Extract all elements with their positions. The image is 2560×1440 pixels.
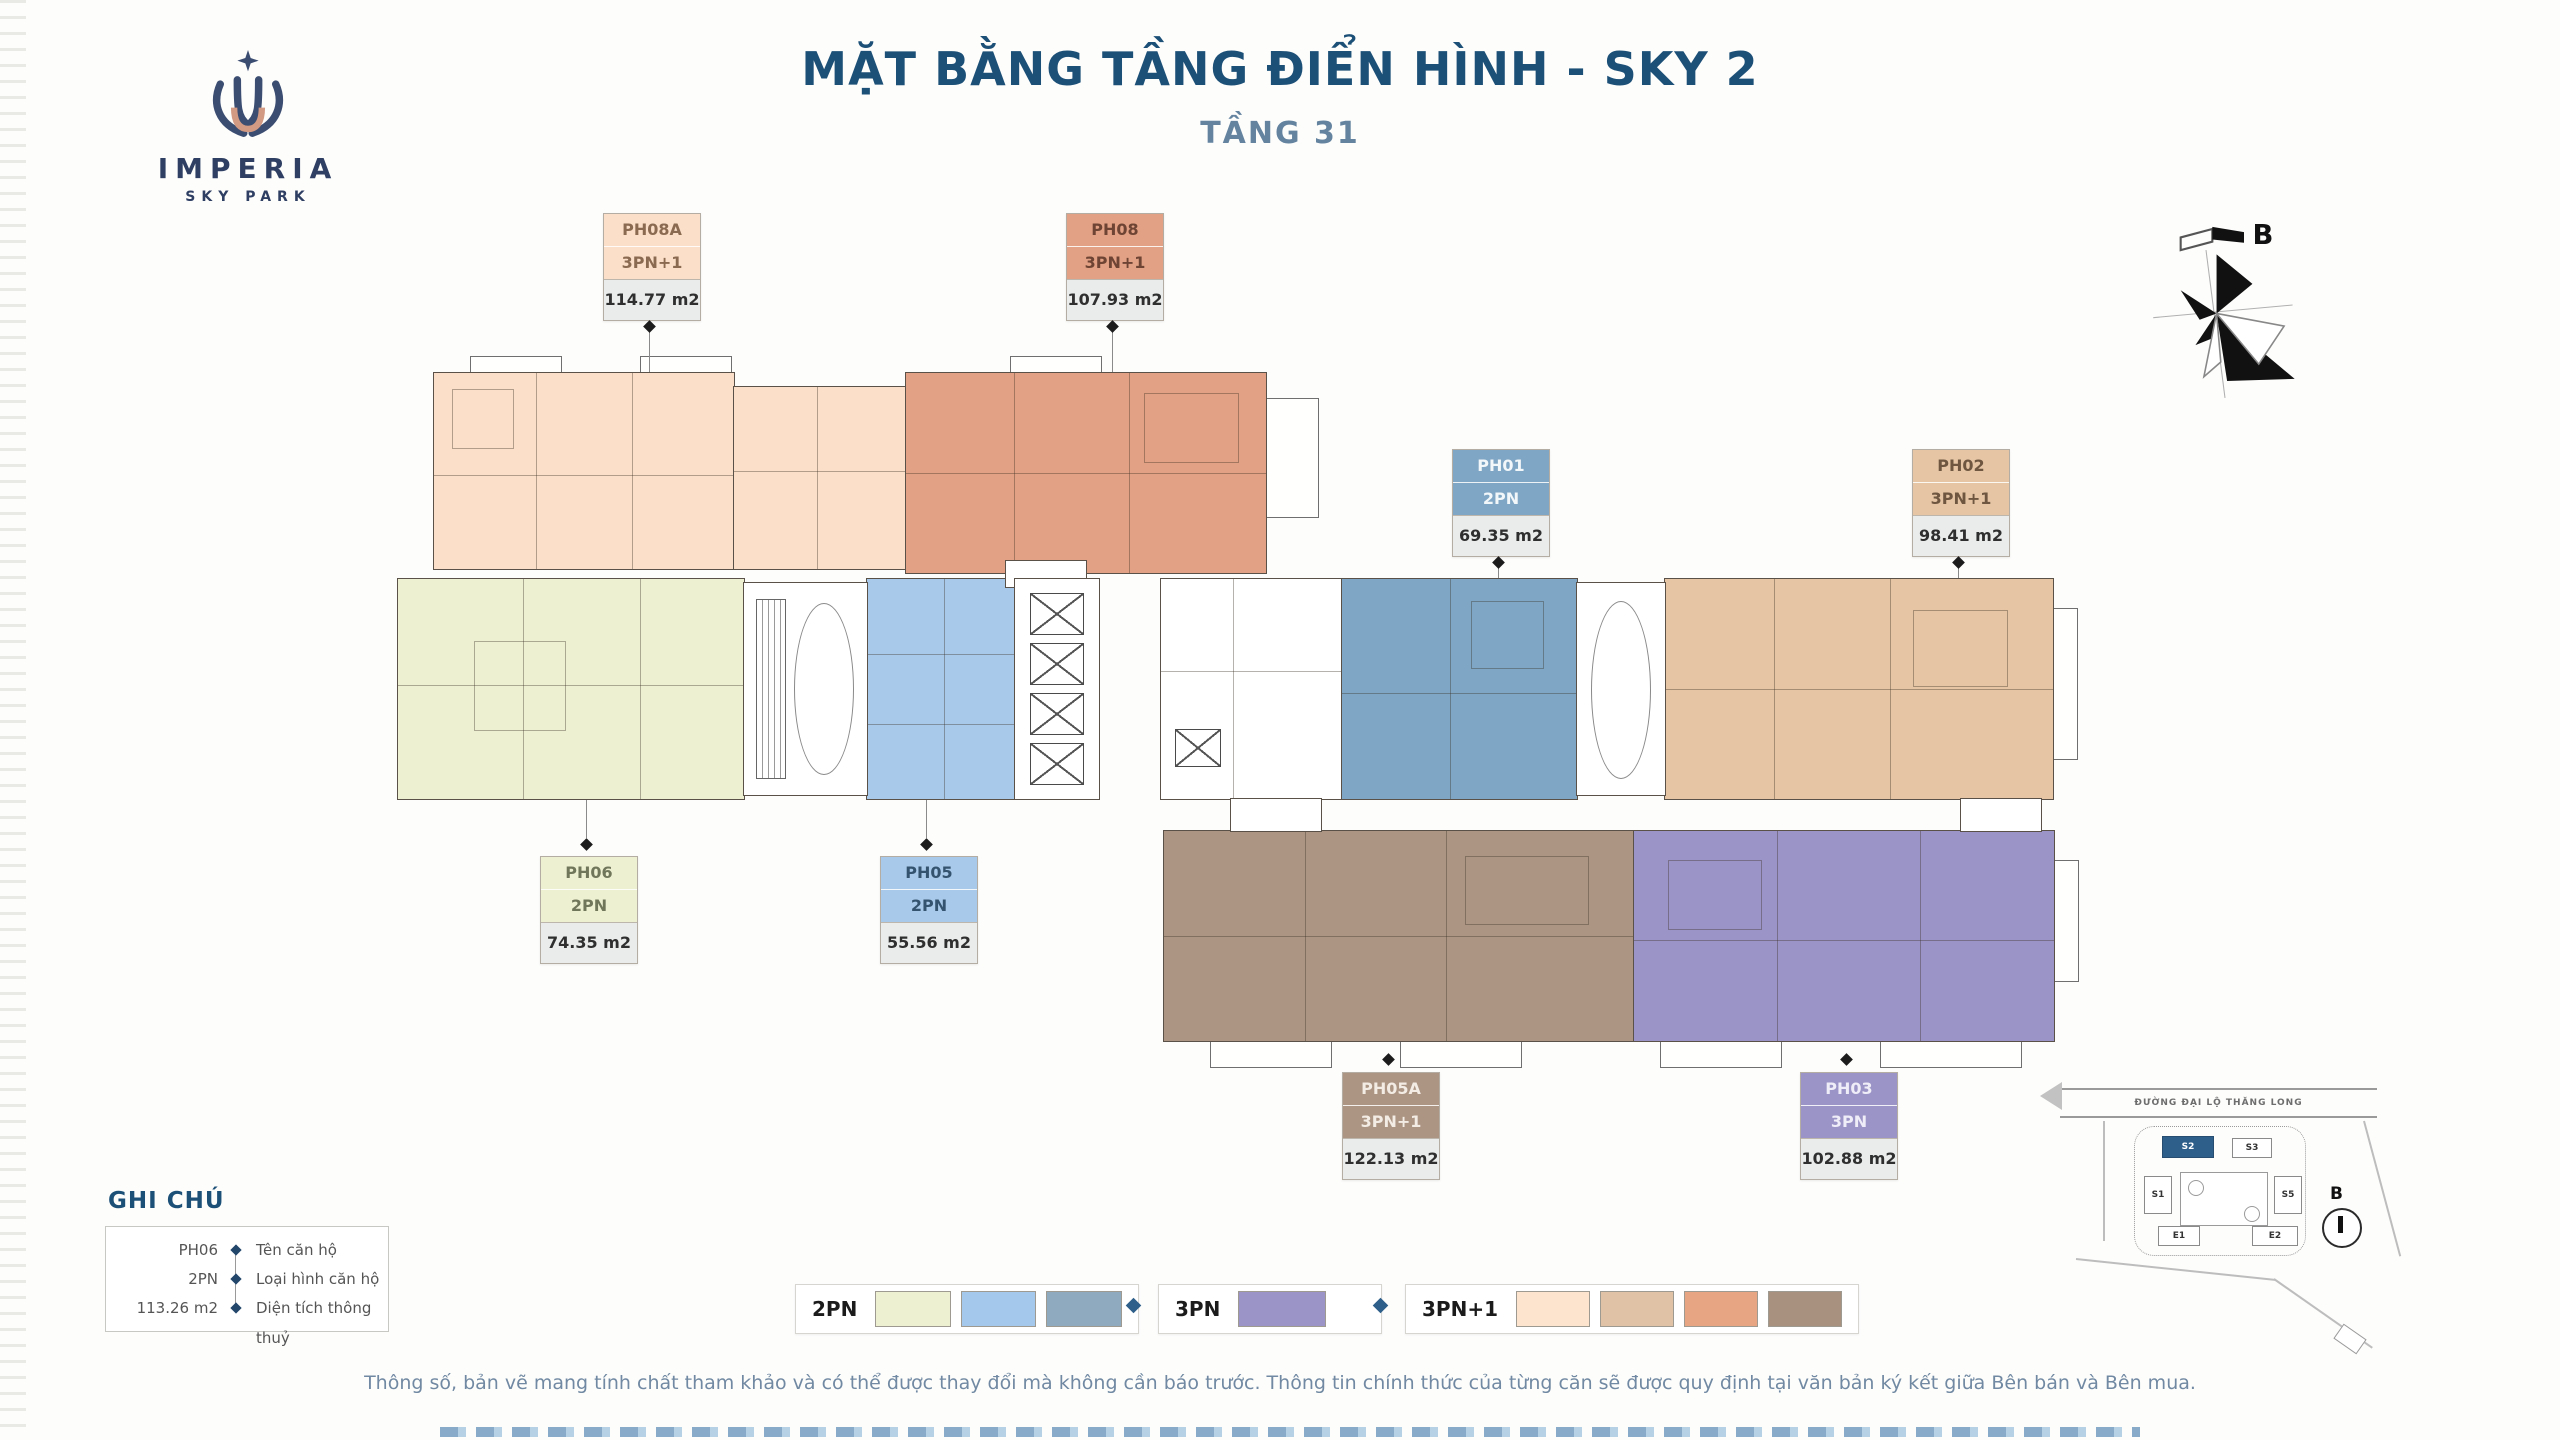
road-line [2076,1258,2275,1281]
color-swatch [1046,1291,1122,1327]
podium-circle [2188,1180,2204,1196]
elevator-shaft [1030,643,1084,685]
notes-legend-title: GHI CHÚ [108,1188,225,1214]
notes-legend-box: PH06 Tên căn hộ 2PN Loại hình căn hộ 113… [105,1226,389,1332]
unit-name: PH01 [1453,450,1549,483]
pointer-diamond [1492,556,1505,569]
sitemap-building-s3: S3 [2232,1138,2272,1158]
pointer-diamond [643,320,656,333]
page-subtitle: TẦNG 31 [1200,116,1360,151]
sitemap-building-s2: S2 [2162,1136,2214,1158]
type-legend-label: 3PN [1175,1297,1220,1321]
notes-row: 2PN Loại hình căn hộ [106,1264,388,1294]
balcony [1400,1040,1522,1068]
elevator-shaft [1030,743,1084,785]
balcony [1880,1040,2022,1068]
unit-type: 3PN+1 [604,247,700,280]
plan-core-stairs-east [1576,582,1666,796]
unit-label-ph05: PH05 2PN 55.56 m2 [880,856,978,964]
floorplan-page: IMPERIA SKY PARK MẶT BẰNG TẦNG ĐIỂN HÌNH… [0,0,2560,1440]
notes-value: 2PN [106,1264,218,1294]
type-legend-label: 3PN+1 [1422,1297,1498,1321]
sitemap-building-s1: S1 [2144,1176,2172,1214]
diamond-icon [230,1273,241,1284]
unit-area: 69.35 m2 [1453,516,1549,556]
page-title: MẶT BẰNG TẦNG ĐIỂN HÌNH - SKY 2 [801,42,1758,96]
plan-unit-ph05a [1163,830,1635,1042]
unit-area: 98.41 m2 [1913,516,2009,556]
balcony [1210,1040,1332,1068]
left-edge-pattern [0,0,26,1440]
unit-label-ph06: PH06 2PN 74.35 m2 [540,856,638,964]
unit-name: PH06 [541,857,637,890]
unit-label-ph08: PH08 3PN+1 107.93 m2 [1066,213,1164,321]
unit-name: PH03 [1801,1073,1897,1106]
notes-row: PH06 Tên căn hộ [106,1235,388,1265]
unit-area: 74.35 m2 [541,923,637,963]
unit-area: 55.56 m2 [881,923,977,963]
elevator-shaft [1030,693,1084,735]
color-swatch [1684,1291,1758,1327]
unit-type: 2PN [541,890,637,923]
stair-oval [794,603,854,775]
site-map: ĐƯỜNG ĐẠI LỘ THĂNG LONG S2 S3 S1 S5 E1 E… [2046,1080,2391,1385]
plan-connector [1230,798,1322,832]
pointer-diamond [1840,1053,1853,1066]
plan-unit-ph01 [1340,578,1578,800]
road-stub [2333,1324,2366,1355]
unit-name: PH05 [881,857,977,890]
unit-name: PH08 [1067,214,1163,247]
unit-label-ph02: PH02 3PN+1 98.41 m2 [1912,449,2010,557]
pointer-diamond [920,838,933,851]
plan-unit-ph08a-east [733,386,907,570]
unit-label-ph08a: PH08A 3PN+1 114.77 m2 [603,213,701,321]
stairs [756,599,786,779]
unit-type: 3PN+1 [1067,247,1163,280]
sitemap-road: ĐƯỜNG ĐẠI LỘ THĂNG LONG [2060,1088,2377,1118]
plan-core-stairs-west [743,582,868,796]
unit-area: 114.77 m2 [604,280,700,320]
plan-unit-ph02 [1664,578,2054,800]
balcony [1660,1040,1782,1068]
pointer-line [926,800,927,838]
balcony [2053,860,2079,982]
road-arrow-icon [2040,1082,2062,1110]
unit-name: PH08A [604,214,700,247]
plan-unit-ph08 [905,372,1267,574]
unit-type: 3PN+1 [1913,483,2009,516]
diamond-icon [230,1244,241,1255]
color-swatch [1516,1291,1590,1327]
disclaimer-text: Thông số, bản vẽ mang tính chất tham khả… [364,1372,2196,1394]
podium-circle [2244,1206,2260,1222]
sitemap-north-label: B [2330,1184,2343,1204]
plan-connector [1960,798,2042,832]
pointer-line [649,332,650,372]
unit-name: PH02 [1913,450,2009,483]
compass-rose-icon: B [2150,210,2300,400]
plan-unit-ph06 [397,578,745,800]
road-line [2103,1121,2105,1241]
plan-core-east [1160,578,1342,800]
type-legend-label: 2PN [812,1297,857,1321]
plan-unit-ph03 [1633,830,2055,1042]
type-legend-3pn1: 3PN+1 [1405,1284,1859,1334]
road-line [2363,1121,2401,1257]
unit-type: 3PN [1801,1106,1897,1139]
unit-area: 102.88 m2 [1801,1139,1897,1179]
brand-subname: SKY PARK [148,189,348,205]
color-swatch [961,1291,1037,1327]
unit-type: 2PN [881,890,977,923]
pointer-diamond [1952,556,1965,569]
brand-logo: IMPERIA SKY PARK [148,50,348,205]
balcony [1265,398,1319,518]
pointer-diamond [1382,1053,1395,1066]
unit-name: PH05A [1343,1073,1439,1106]
stair-oval [1591,601,1651,779]
pointer-line [1112,332,1113,372]
type-legend-3pn: 3PN [1158,1284,1382,1334]
pointer-line [586,800,587,838]
type-legend-2pn: 2PN [795,1284,1139,1334]
sitemap-north-needle [2338,1216,2343,1233]
notes-value: PH06 [106,1235,218,1265]
unit-label-ph03: PH03 3PN 102.88 m2 [1800,1072,1898,1180]
sitemap-building-e1: E1 [2158,1226,2200,1246]
notes-label: Loại hình căn hộ [256,1264,379,1294]
plan-unit-ph05 [866,578,1016,800]
tulip-logo-icon [183,50,313,146]
color-swatch [1238,1291,1326,1327]
unit-type: 3PN+1 [1343,1106,1439,1139]
notes-label: Diện tích thông thuỷ [256,1293,388,1353]
brand-name: IMPERIA [148,152,348,185]
pointer-diamond [1106,320,1119,333]
compass-north-label: B [2252,220,2273,251]
notes-row: 113.26 m2 Diện tích thông thuỷ [106,1293,388,1323]
elevator-shaft [1030,593,1084,635]
notes-value: 113.26 m2 [106,1293,218,1323]
sitemap-road-label: ĐƯỜNG ĐẠI LỘ THĂNG LONG [2134,1098,2302,1108]
sitemap-building-s5: S5 [2274,1176,2302,1214]
unit-area: 107.93 m2 [1067,280,1163,320]
elevator-shaft [1175,729,1221,767]
unit-area: 122.13 m2 [1343,1139,1439,1179]
unit-label-ph01: PH01 2PN 69.35 m2 [1452,449,1550,557]
color-swatch [1600,1291,1674,1327]
plan-unit-ph08a [433,372,735,570]
balcony [2052,608,2078,760]
sitemap-building-e2: E2 [2252,1226,2298,1246]
color-swatch [875,1291,951,1327]
unit-label-ph05a: PH05A 3PN+1 122.13 m2 [1342,1072,1440,1180]
color-swatch [1768,1291,1842,1327]
footer-pattern-strip [440,1427,2140,1437]
unit-type: 2PN [1453,483,1549,516]
plan-core-elevators [1014,578,1100,800]
pointer-diamond [580,838,593,851]
diamond-icon [230,1302,241,1313]
notes-label: Tên căn hộ [256,1235,337,1265]
